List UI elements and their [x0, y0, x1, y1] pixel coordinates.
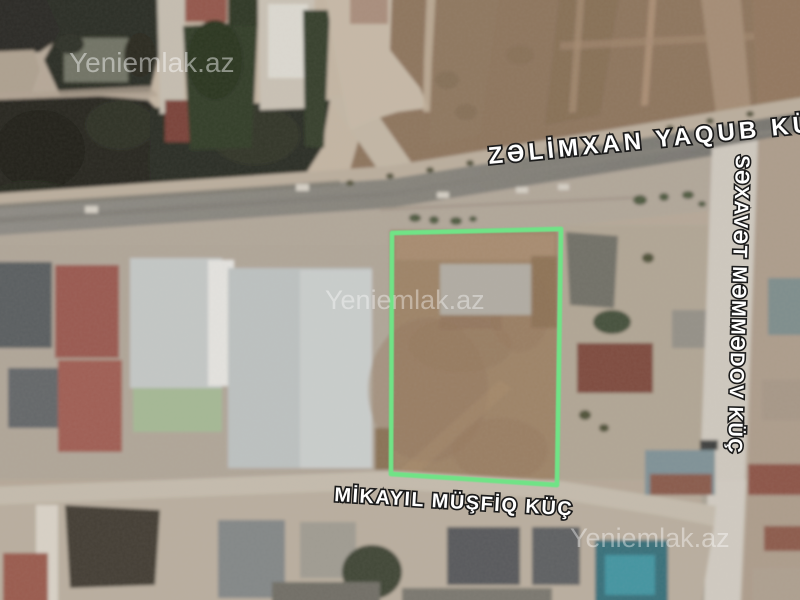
svg-text:Yeniemlak.az: Yeniemlak.az	[325, 285, 485, 315]
svg-text:Yeniemlak.az: Yeniemlak.az	[570, 523, 730, 553]
svg-text:Yeniemlak.az: Yeniemlak.az	[69, 47, 235, 78]
